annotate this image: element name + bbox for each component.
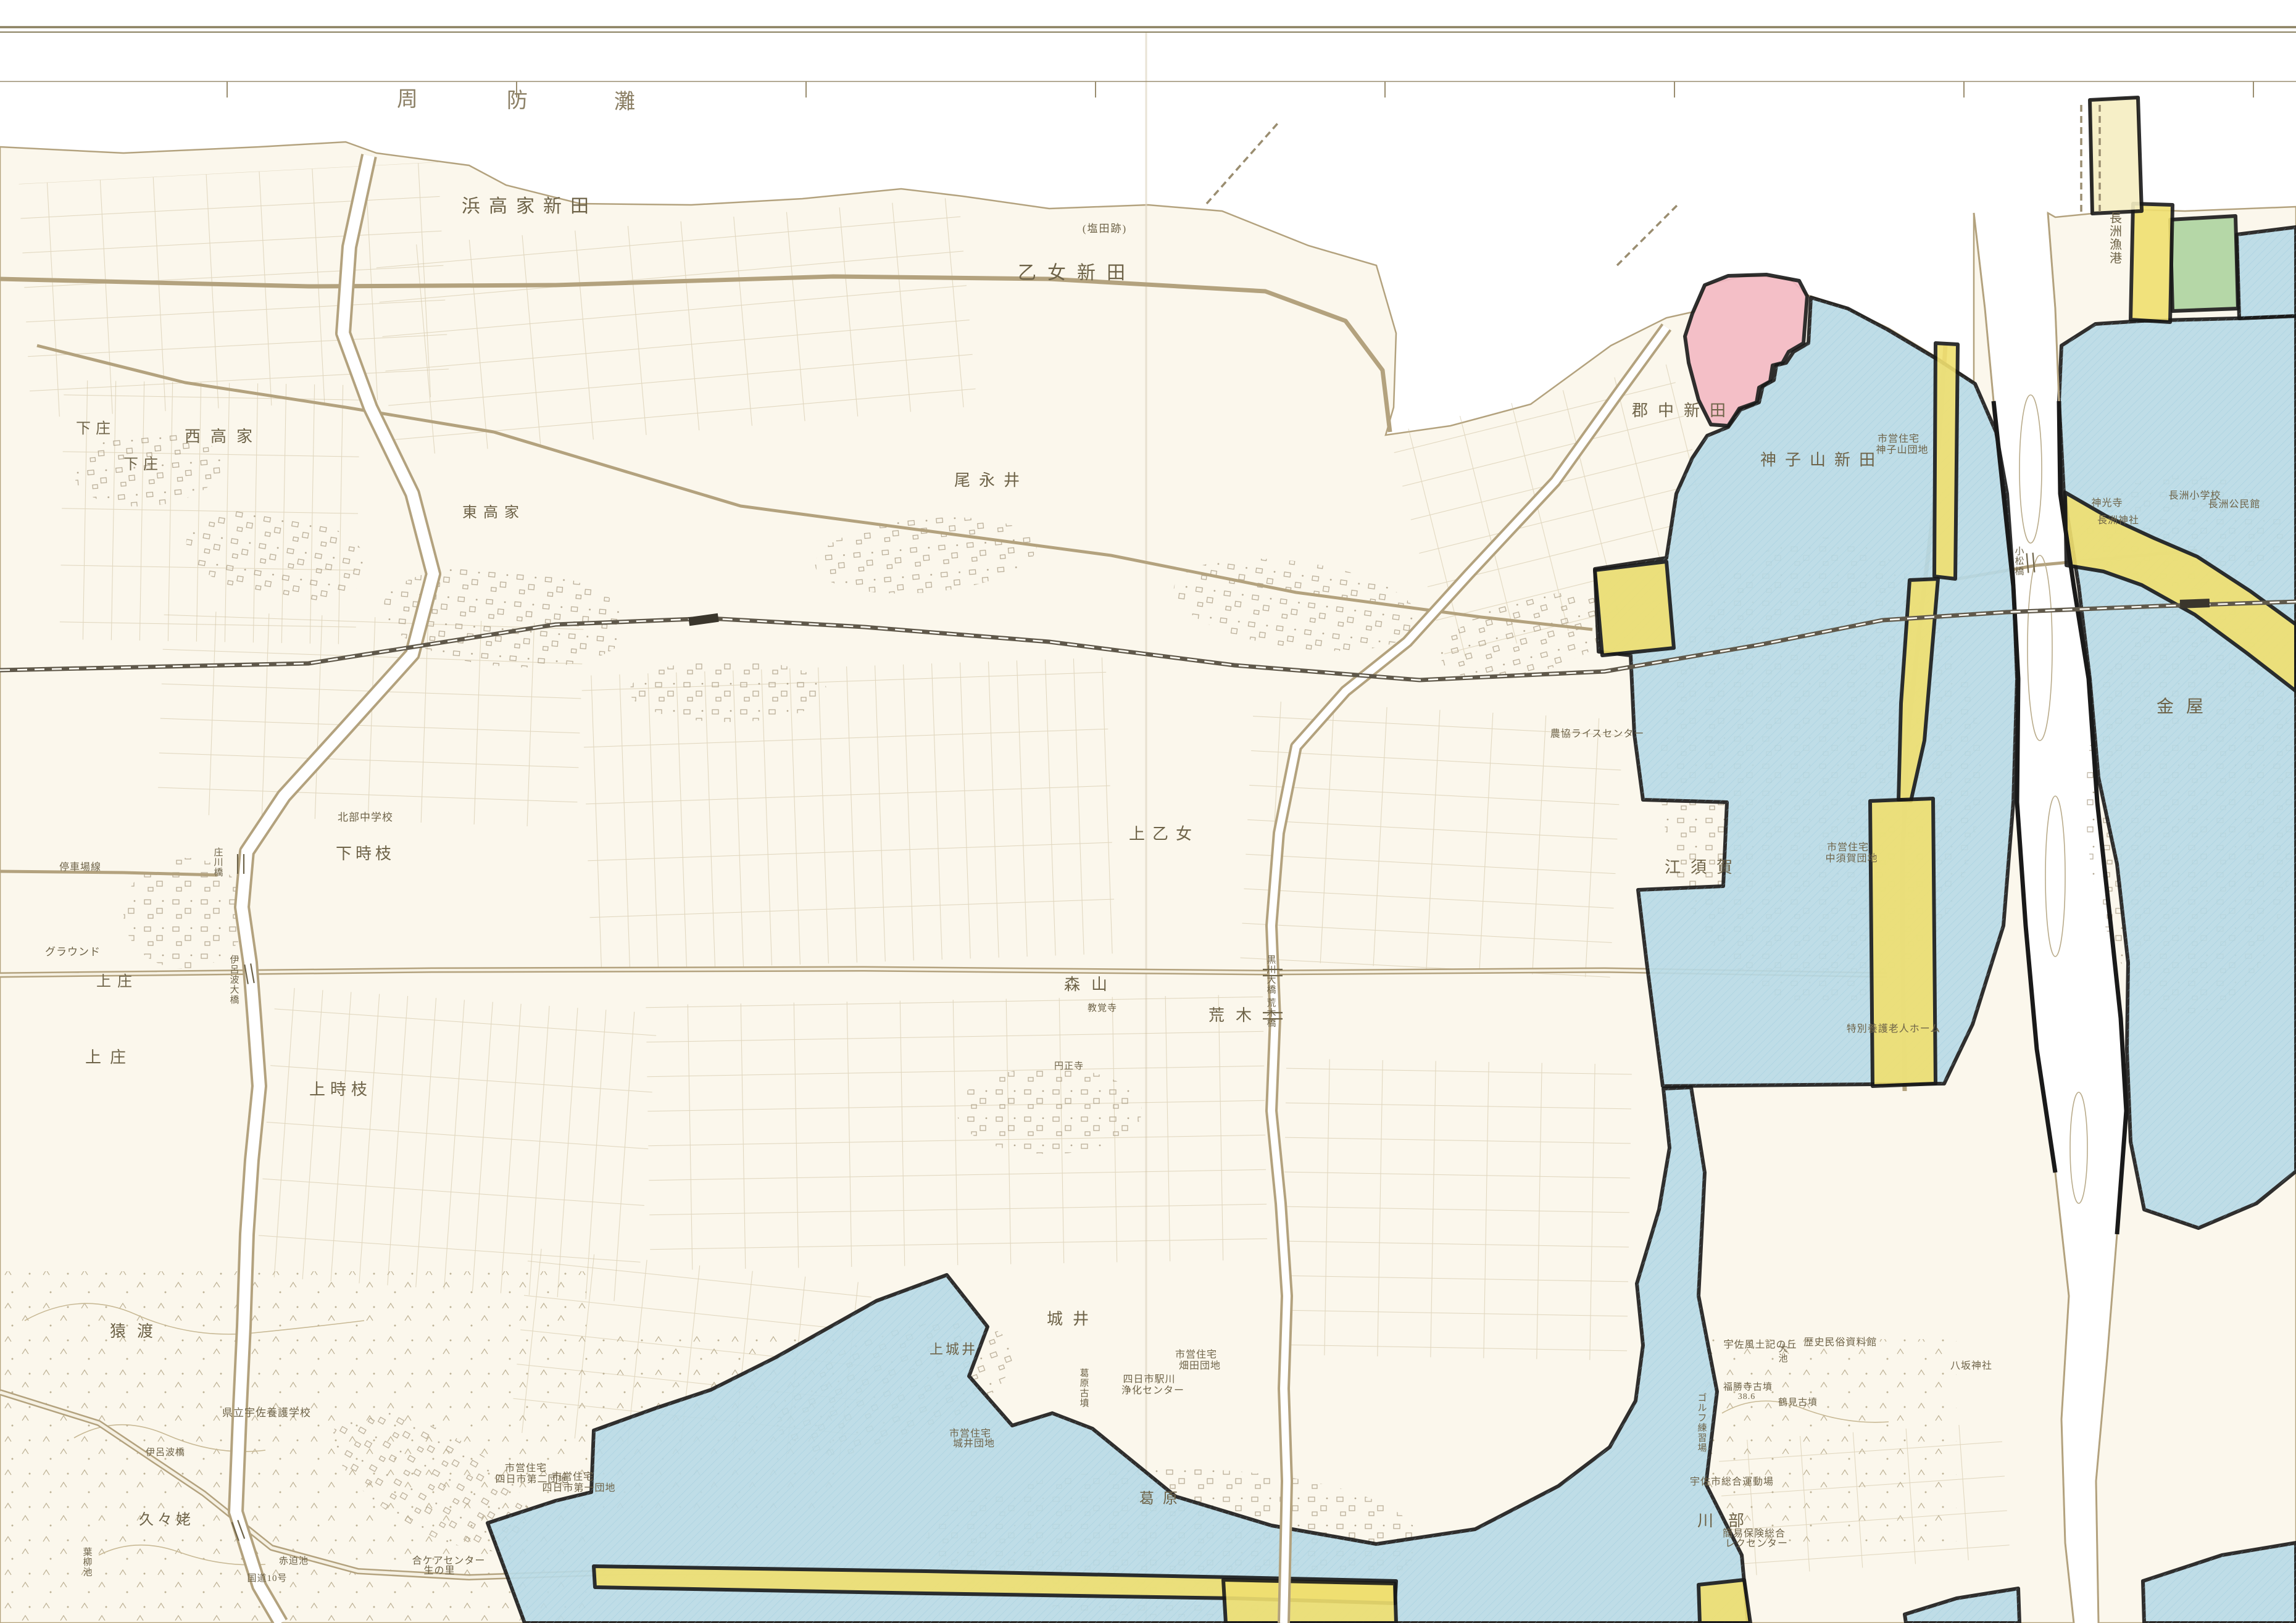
zone-yellow-br-corner xyxy=(1699,1580,1750,1623)
map-label: 尾永井 xyxy=(954,471,1028,489)
map-label: 市営住宅 xyxy=(1878,433,1920,444)
map-label: 葉柳池 xyxy=(83,1547,92,1577)
map-label: 上庄 xyxy=(85,1048,135,1066)
zone-yellow-strip-a xyxy=(1934,343,1958,579)
map-label: 教覚寺 xyxy=(1088,1003,1117,1013)
map-label: 葛原 xyxy=(1139,1490,1186,1507)
zone-yellow-strip-c xyxy=(1870,799,1936,1086)
map-label: 四日市駅川 xyxy=(1123,1374,1175,1385)
map-label: 市営住宅 xyxy=(1175,1349,1217,1360)
map-label: 小松橋 xyxy=(2015,546,2024,576)
map-label: 荒木橋 xyxy=(1267,998,1276,1028)
farmland-texture xyxy=(646,994,1267,1270)
village-texture xyxy=(630,660,827,722)
map-label: 森山 xyxy=(1064,976,1118,994)
map-label: 下庄 xyxy=(76,420,115,437)
map-label: 円正寺 xyxy=(1054,1061,1084,1071)
map-label: 農協ライスセンター xyxy=(1550,728,1645,739)
map-canvas: 周防灘浜高家新田乙女新田(塩田跡)下庄下庄西高家東高家尾永井郡中新田神子山新田市… xyxy=(0,0,2296,1623)
sea-name-label: 防 xyxy=(507,89,528,112)
map-label: 市営住宅 xyxy=(505,1463,547,1474)
map-label: 金屋 xyxy=(2157,697,2216,716)
map-label: レクセンター xyxy=(1725,1538,1788,1549)
map-label: 合ケアセンター xyxy=(412,1555,486,1566)
map-label: 八坂神社 xyxy=(1950,1360,1992,1371)
scanned-city-planning-zoning-map: 周防灘浜高家新田乙女新田(塩田跡)下庄下庄西高家東高家尾永井郡中新田神子山新田市… xyxy=(0,0,2296,1623)
map-label: グラウンド xyxy=(45,946,101,958)
map-label: 四日市第一団地 xyxy=(542,1482,615,1493)
zone-paleyellow-spit xyxy=(2090,98,2142,214)
map-label: 特別養護老人ホーム xyxy=(1847,1023,1941,1034)
map-label: 市営住宅 xyxy=(552,1471,594,1482)
railway-station-mark xyxy=(2180,599,2210,608)
sea-name-label: 周 xyxy=(397,88,418,111)
map-label: 赤迫池 xyxy=(279,1556,309,1566)
farmland-texture xyxy=(59,380,360,644)
map-label: 川部 xyxy=(1697,1512,1759,1530)
map-label: 伊呂波橋 xyxy=(146,1447,185,1458)
map-label: 城井団地 xyxy=(953,1438,995,1449)
map-label: 伊呂波大橋 xyxy=(230,955,239,1005)
map-label: 庄川橋 xyxy=(214,847,223,878)
zone-blue-east-top-hatch xyxy=(2237,227,2296,318)
map-label: 下庄 xyxy=(123,456,163,473)
zone-yellow-station-patch xyxy=(1595,562,1674,655)
map-label: 鶴見古墳 xyxy=(1778,1397,1818,1408)
map-label: 国道10号 xyxy=(247,1573,287,1584)
sea-name-label: 灘 xyxy=(614,90,635,114)
map-label: 浄化センター xyxy=(1121,1385,1184,1396)
map-label: 黒川大橋 xyxy=(1267,955,1276,995)
farmland-texture xyxy=(1281,1058,1632,1361)
map-label: 上城井 xyxy=(930,1342,978,1357)
map-label: 久々姥 xyxy=(139,1511,194,1528)
map-label: 浜高家新田 xyxy=(462,196,597,217)
map-label: 長洲漁港 xyxy=(2110,212,2122,265)
map-label: 38.6 xyxy=(1738,1392,1756,1401)
zone-green-nagasu xyxy=(2170,216,2238,311)
map-label: 停車場線 xyxy=(59,861,101,873)
map-label: 長洲神社 xyxy=(2097,515,2139,526)
zone-yellow-route10-blob xyxy=(1223,1580,1396,1623)
map-label: 宇佐市総合運動場 xyxy=(1690,1476,1774,1487)
map-label: 上時枝 xyxy=(309,1081,372,1098)
map-label: 生の里 xyxy=(423,1565,455,1576)
map-label: 畑田団地 xyxy=(1179,1360,1221,1371)
map-label: 神光寺 xyxy=(2091,497,2123,508)
map-label: 江須賀 xyxy=(1665,858,1742,876)
map-label: 中須賀団地 xyxy=(1825,853,1878,864)
map-label: 市営住宅 xyxy=(1827,842,1869,853)
map-label: 葛原古墳 xyxy=(1079,1368,1089,1409)
village-texture xyxy=(957,1068,1142,1154)
map-label: 城井 xyxy=(1047,1310,1099,1328)
map-label: 下時枝 xyxy=(336,845,395,863)
map-label: (塩田跡) xyxy=(1083,223,1127,235)
map-label: 荒木 xyxy=(1208,1007,1263,1024)
map-label: 郡中新田 xyxy=(1632,402,1736,420)
map-label: 神子山団地 xyxy=(1876,444,1928,455)
map-label: 上乙女 xyxy=(1129,825,1199,843)
map-label: 乙女新田 xyxy=(1018,263,1136,283)
zone-yellow-nagasu-north xyxy=(2131,204,2173,322)
map-label: 長洲公民館 xyxy=(2208,499,2260,510)
map-label: 大池 xyxy=(1778,1343,1787,1364)
map-label: 西高家 xyxy=(185,428,262,446)
map-label: 北部中学校 xyxy=(338,811,393,823)
map-label: 神子山新田 xyxy=(1760,451,1884,469)
map-label: 東高家 xyxy=(462,504,525,521)
map-label: ゴルフ練習場 xyxy=(1697,1392,1707,1453)
map-label: 猿渡 xyxy=(110,1322,164,1340)
map-label: 上庄 xyxy=(96,973,138,990)
map-label: 福勝寺古墳 xyxy=(1723,1382,1773,1392)
map-label: 県立宇佐養護学校 xyxy=(222,1407,311,1419)
map-label: 歴史民俗資料館 xyxy=(1803,1337,1877,1348)
map-label: 市営住宅 xyxy=(949,1428,991,1439)
